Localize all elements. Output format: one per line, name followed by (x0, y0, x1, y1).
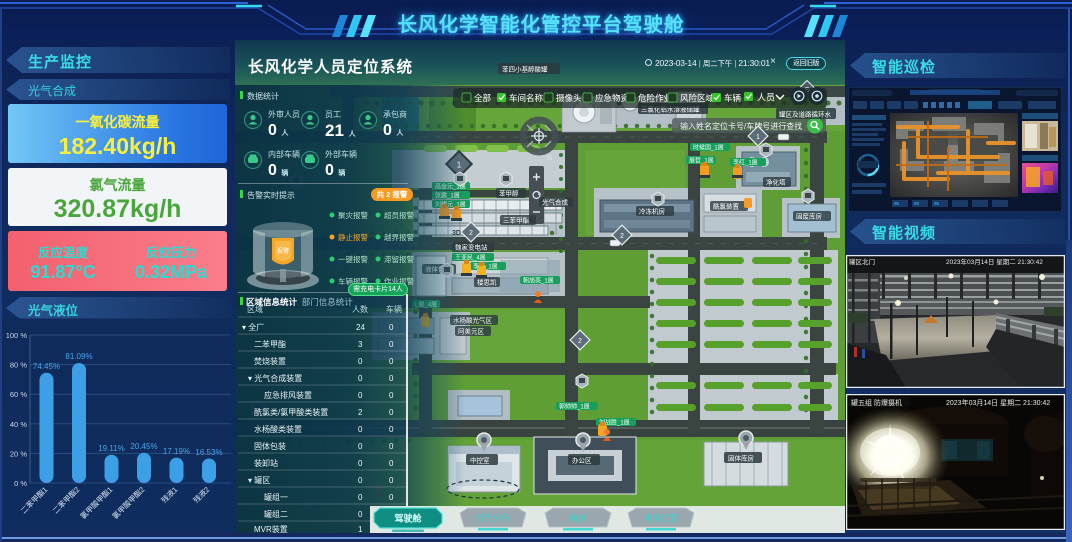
svg-text:办公区: 办公区 (572, 456, 592, 465)
svg-text:酰氯装置: 酰氯装置 (713, 202, 740, 211)
svg-text:100 %: 100 % (6, 331, 28, 340)
svg-text:应急排风装置: 应急排风装置 (264, 390, 312, 400)
svg-text:0: 0 (358, 357, 363, 366)
svg-text:外部车辆: 外部车辆 (325, 149, 357, 159)
svg-text:水杨酸类装置: 水杨酸类装置 (254, 424, 302, 434)
svg-text:0: 0 (358, 374, 363, 383)
svg-text:20 %: 20 % (10, 449, 27, 458)
svg-text:苯甲醇: 苯甲醇 (499, 189, 519, 198)
svg-text:罐区及道路循环水: 罐区及道路循环水 (779, 110, 832, 119)
svg-text:超员报警: 超员报警 (384, 210, 414, 220)
svg-text:报警: 报警 (277, 247, 289, 255)
svg-text:0: 0 (358, 476, 363, 485)
svg-text:时候国_1展: 时候国_1展 (693, 144, 724, 152)
svg-text:0: 0 (358, 493, 363, 502)
svg-text:24: 24 (356, 323, 365, 332)
svg-text:1: 1 (756, 134, 760, 141)
svg-text:滞留报警: 滞留报警 (384, 254, 414, 264)
svg-text:2023年03月14日 星期二 21:30:42: 2023年03月14日 星期二 21:30:42 (946, 398, 1050, 407)
svg-text:冷冻机房: 冷冻机房 (639, 207, 665, 216)
svg-text:0: 0 (389, 408, 394, 417)
svg-text:2: 2 (358, 408, 363, 417)
svg-text:郭帅帅_1展: 郭帅帅_1展 (559, 403, 590, 411)
svg-text:▾ 全厂: ▾ 全厂 (242, 322, 264, 332)
svg-text:21 人: 21 人 (325, 121, 357, 140)
svg-text:0: 0 (389, 323, 394, 332)
svg-text:0: 0 (389, 493, 394, 502)
svg-text:装卸站: 装卸站 (254, 458, 278, 468)
svg-text:二苯甲酯: 二苯甲酯 (254, 339, 286, 349)
svg-text:0 %: 0 % (14, 479, 27, 488)
svg-text:区域: 区域 (247, 304, 263, 314)
svg-text:楼思凯: 楼思凯 (477, 278, 497, 287)
svg-text:0: 0 (389, 391, 394, 400)
svg-text:焚烧装置: 焚烧装置 (254, 356, 286, 366)
svg-text:三苯甲酯: 三苯甲酯 (503, 216, 530, 225)
svg-text:越界报警: 越界报警 (384, 232, 414, 242)
svg-text:朝旭亮_1展: 朝旭亮_1展 (523, 277, 554, 285)
svg-text:0 人: 0 人 (268, 122, 289, 139)
svg-text:酰氯类/氯甲酸类装置: 酰氯类/氯甲酸类装置 (254, 407, 328, 417)
svg-text:0: 0 (358, 391, 363, 400)
svg-text:内部车辆: 内部车辆 (268, 149, 300, 159)
svg-text:0: 0 (389, 459, 394, 468)
svg-text:▾ 光气合成装置: ▾ 光气合成装置 (248, 373, 302, 383)
svg-text:0: 0 (389, 425, 394, 434)
svg-text:罐区北门: 罐区北门 (849, 257, 875, 266)
svg-text:0: 0 (389, 442, 394, 451)
svg-text:20.45%: 20.45% (130, 442, 157, 451)
svg-text:固废库房: 固废库房 (796, 212, 822, 221)
svg-text:0 辆: 0 辆 (268, 162, 288, 179)
svg-text:人员: 人员 (757, 93, 775, 103)
svg-text:17.19%: 17.19% (163, 447, 190, 456)
svg-text:光气合成: 光气合成 (542, 198, 569, 207)
svg-text:N: N (547, 155, 552, 162)
svg-text:应急物资: 应急物资 (595, 93, 630, 103)
svg-text:车间名称: 车间名称 (509, 93, 544, 103)
svg-text:罐组二: 罐组二 (264, 509, 288, 519)
svg-text:展哲_1展: 展哲_1展 (689, 158, 714, 165)
svg-text:静止报警: 静止报警 (338, 232, 368, 242)
svg-text:危险作业: 危险作业 (638, 93, 672, 103)
svg-text:0: 0 (389, 510, 394, 519)
svg-text:19.11%: 19.11% (98, 444, 125, 453)
svg-text:0: 0 (358, 442, 363, 451)
svg-text:承包商: 承包商 (383, 109, 407, 119)
svg-text:MVR装置: MVR装置 (254, 524, 288, 533)
svg-text:人数: 人数 (352, 304, 368, 314)
svg-text:1: 1 (358, 525, 363, 533)
svg-text:一键报警: 一键报警 (338, 254, 368, 264)
svg-text:摄像头: 摄像头 (556, 93, 582, 103)
svg-text:40 %: 40 % (10, 420, 27, 429)
svg-text:全部: 全部 (474, 93, 492, 103)
svg-text:74.45%: 74.45% (33, 362, 60, 371)
svg-text:0 辆: 0 辆 (325, 162, 345, 179)
svg-text:0: 0 (358, 510, 363, 519)
svg-text:2023年03月14日 星期二 21:30:42: 2023年03月14日 星期二 21:30:42 (946, 257, 1043, 266)
svg-text:▾ 罐区: ▾ 罐区 (248, 475, 270, 485)
svg-text:0: 0 (389, 476, 394, 485)
svg-text:罐五组 防爆摄机: 罐五组 防爆摄机 (851, 398, 902, 407)
svg-text:风险区域: 风险区域 (680, 93, 715, 103)
svg-text:聚灾报警: 聚灾报警 (338, 210, 368, 220)
svg-text:0: 0 (389, 357, 394, 366)
svg-text:0: 0 (389, 340, 394, 349)
svg-text:0: 0 (358, 459, 363, 468)
svg-text:净化塔: 净化塔 (766, 178, 786, 187)
svg-text:60 %: 60 % (10, 390, 27, 399)
svg-text:2: 2 (578, 338, 582, 345)
svg-text:员工: 员工 (325, 110, 341, 119)
svg-text:0: 0 (389, 374, 394, 383)
svg-text:81.09%: 81.09% (65, 352, 92, 361)
svg-text:2: 2 (620, 233, 624, 240)
svg-text:外审人员: 外审人员 (268, 109, 300, 119)
svg-text:0 人: 0 人 (383, 122, 404, 139)
svg-text:固体包装: 固体包装 (254, 441, 286, 451)
svg-text:中控室: 中控室 (470, 456, 490, 465)
svg-text:罐组一: 罐组一 (264, 492, 288, 502)
svg-text:0: 0 (358, 425, 363, 434)
svg-text:2: 2 (469, 230, 473, 237)
svg-text:3: 3 (358, 340, 363, 349)
svg-text:80 %: 80 % (10, 361, 27, 370)
svg-text:车辆: 车辆 (386, 304, 402, 314)
svg-text:16.53%: 16.53% (195, 448, 222, 457)
svg-text:固体库房: 固体库房 (728, 454, 754, 463)
svg-text:苯四小基醇酸罐: 苯四小基醇酸罐 (502, 65, 548, 74)
svg-text:输入姓名定位卡号/车牌号进行查找: 输入姓名定位卡号/车牌号进行查找 (680, 121, 802, 131)
